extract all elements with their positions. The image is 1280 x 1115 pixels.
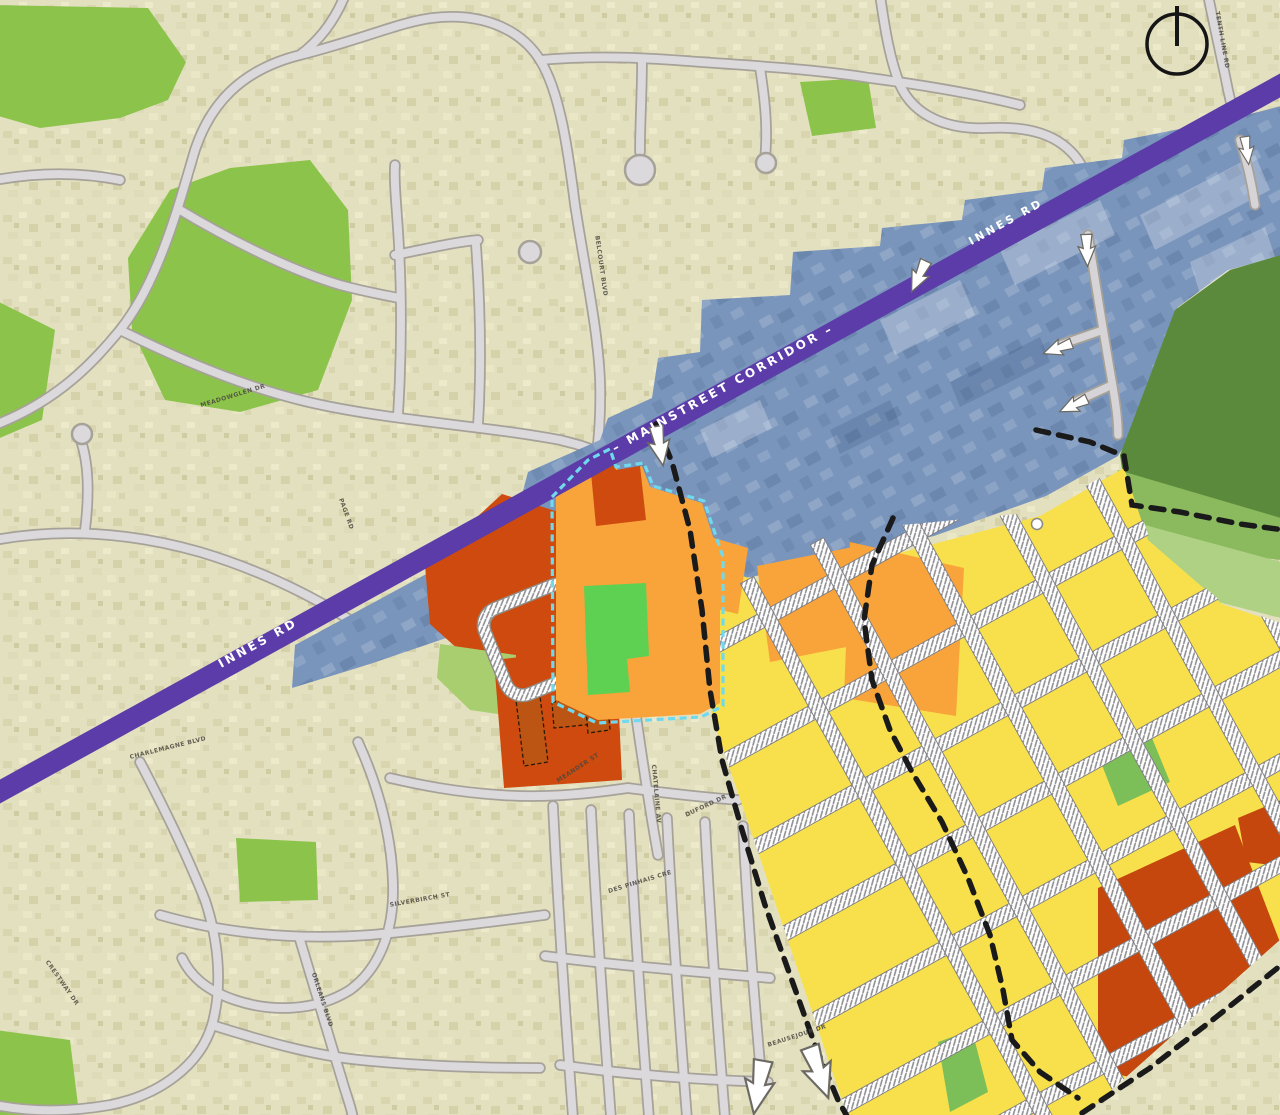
zoning-map-canvas xyxy=(0,0,1280,1115)
boundary-marker-dot xyxy=(1032,519,1043,530)
zoning-map: INNES RD – MAINSTREET CORRIDOR – INNES R… xyxy=(0,0,1280,1115)
